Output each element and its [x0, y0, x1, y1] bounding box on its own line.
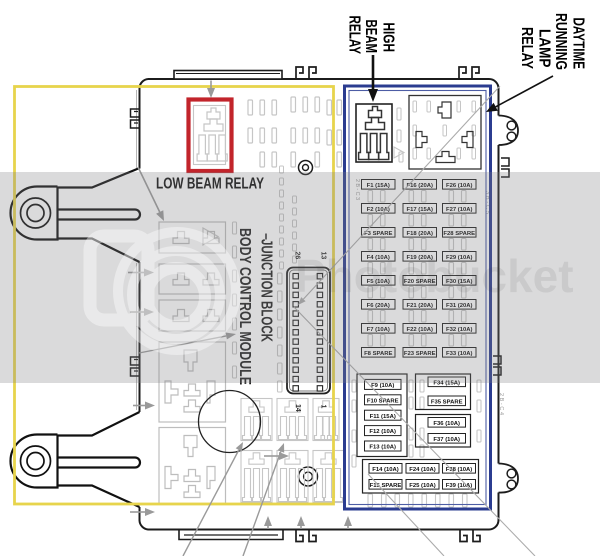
svg-text:DAYTIME: DAYTIME	[570, 18, 587, 70]
svg-text:F37 (10A): F37 (10A)	[433, 437, 460, 443]
svg-text:LAMP: LAMP	[536, 29, 553, 68]
svg-text:F11 (15A): F11 (15A)	[370, 414, 396, 420]
svg-text:RELAY: RELAY	[518, 27, 535, 69]
svg-text:HIGH: HIGH	[380, 23, 397, 53]
svg-text:RELAY: RELAY	[346, 16, 363, 55]
svg-text:F14 (10A): F14 (10A)	[372, 467, 399, 473]
svg-text:F24 (10A): F24 (10A)	[409, 467, 436, 473]
svg-text:F35 SPARE: F35 SPARE	[431, 399, 463, 405]
svg-text:F36 (10A): F36 (10A)	[433, 421, 460, 427]
svg-text:F13 (10A): F13 (10A)	[369, 445, 396, 451]
svg-text:F15 SPARE: F15 SPARE	[370, 483, 402, 489]
svg-text:RUNNING: RUNNING	[552, 13, 569, 70]
svg-text:F9 (10A): F9 (10A)	[371, 383, 394, 389]
svg-text:BEAM: BEAM	[362, 20, 379, 54]
svg-text:1: 1	[320, 405, 327, 409]
svg-text:F12 (10A): F12 (10A)	[369, 429, 396, 435]
svg-text:Photobucket: Photobucket	[295, 250, 574, 302]
svg-text:14: 14	[294, 404, 301, 412]
svg-text:F39 (10A): F39 (10A)	[446, 483, 473, 489]
svg-text:F25 (10A): F25 (10A)	[409, 483, 436, 489]
